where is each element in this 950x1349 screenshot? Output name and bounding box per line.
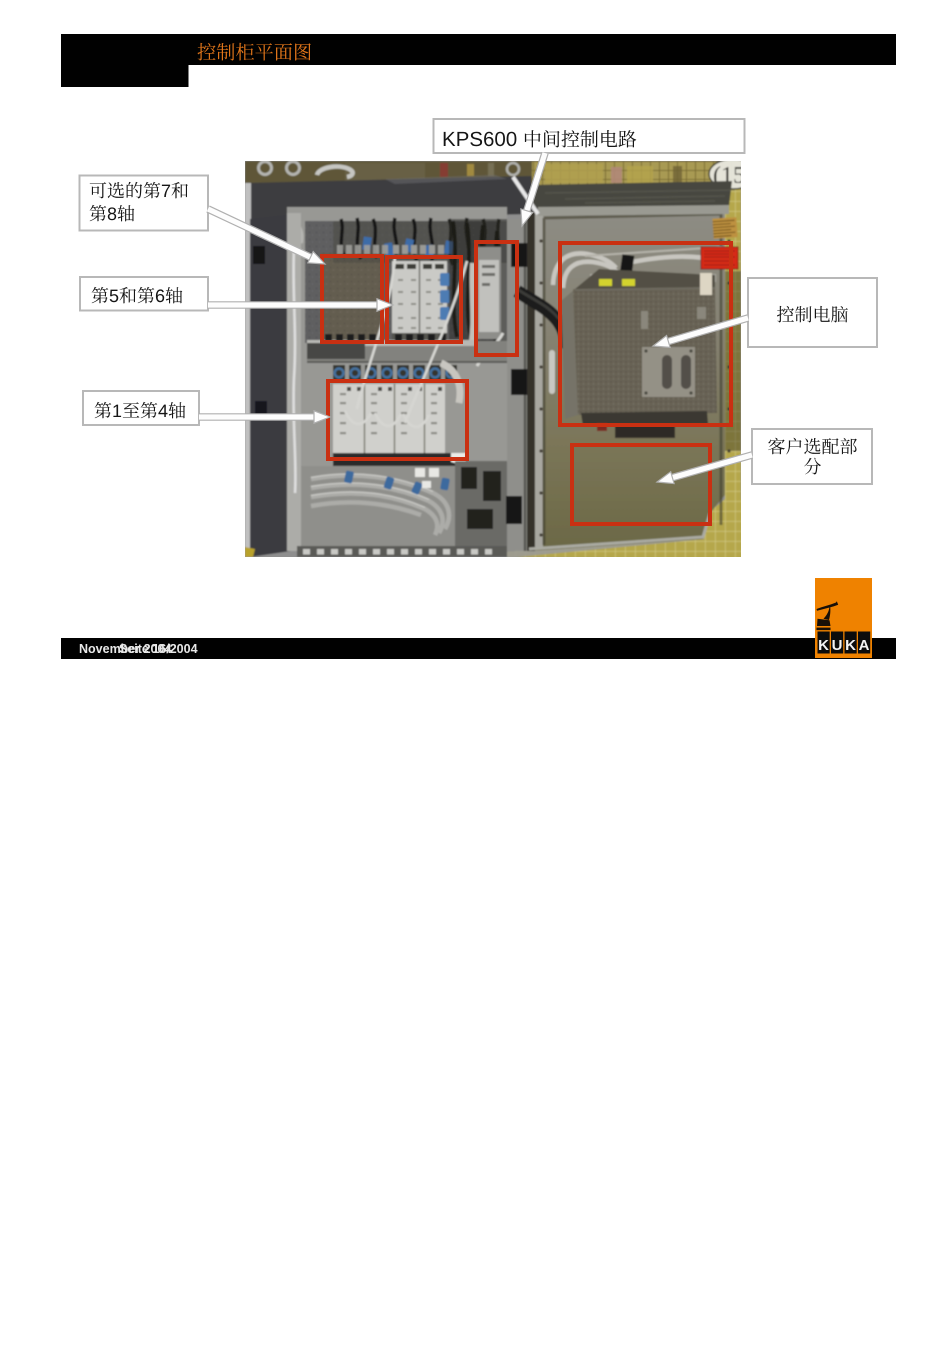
svg-text:K: K [818, 637, 829, 654]
svg-text:Seite 16/2004: Seite 16/2004 [119, 642, 198, 656]
svg-text:U: U [832, 637, 843, 654]
svg-text:A: A [859, 637, 870, 654]
svg-text:K: K [845, 637, 856, 654]
